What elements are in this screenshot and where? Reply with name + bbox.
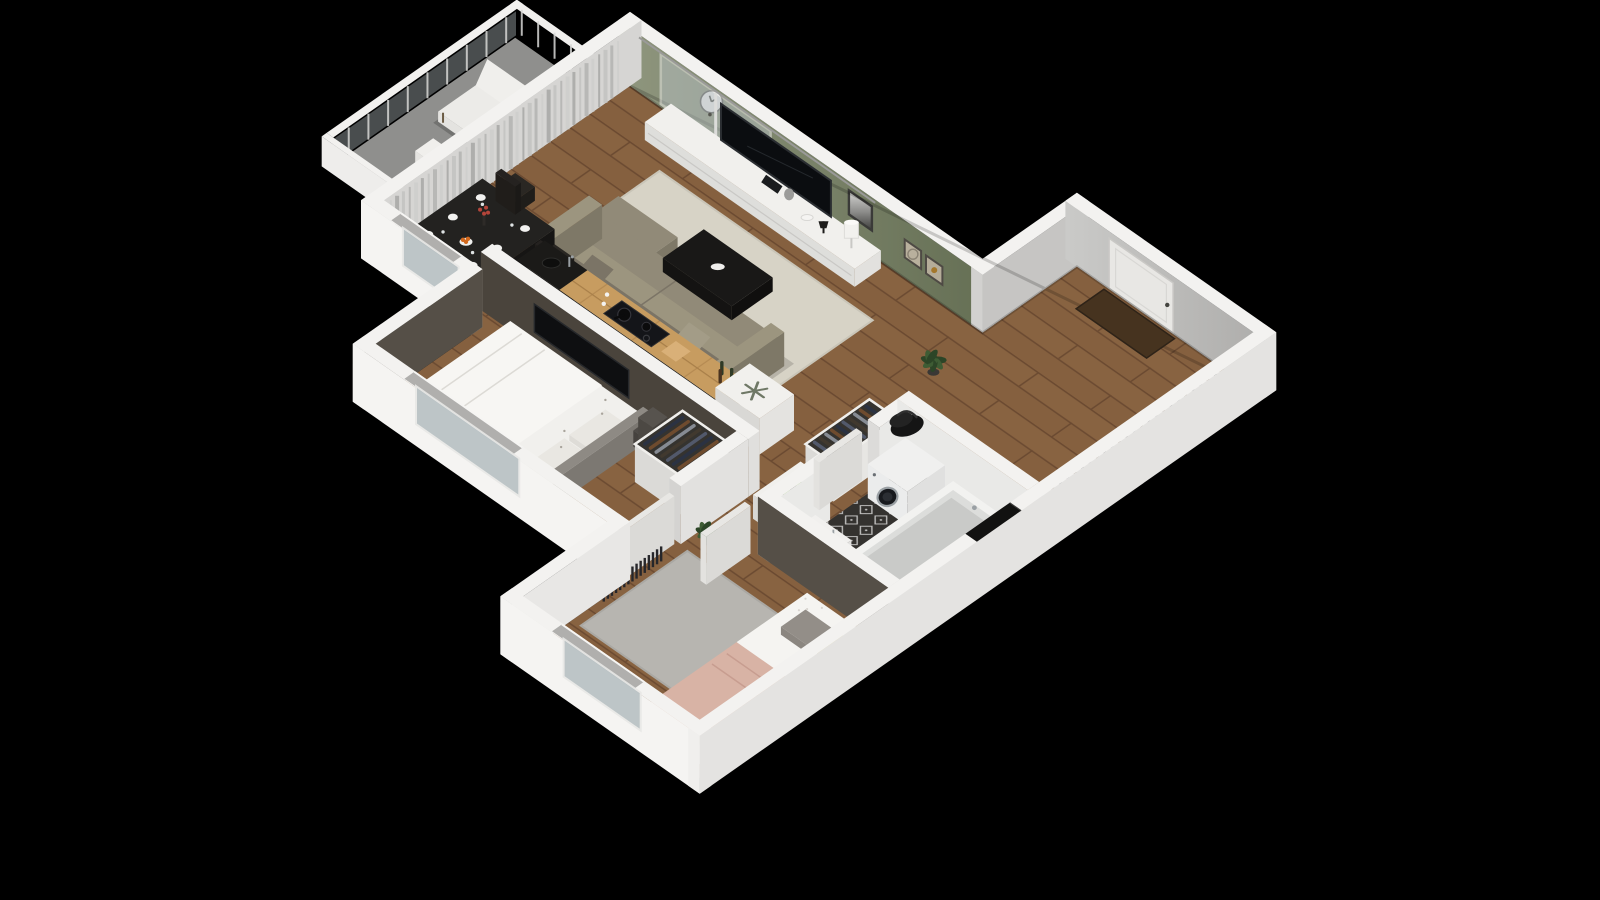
- frame-art-dot: [931, 267, 937, 273]
- sink-basin: [542, 258, 560, 268]
- flower: [482, 212, 486, 216]
- floor-plan-render: DE: [0, 0, 1600, 900]
- table-tray: [711, 263, 725, 270]
- glass: [481, 203, 484, 206]
- bathroom-door-open-left: [814, 458, 820, 510]
- faucet-head: [571, 255, 574, 258]
- flower: [478, 208, 482, 212]
- orange: [464, 240, 468, 244]
- slider-handle: [708, 113, 712, 117]
- glass: [471, 251, 474, 254]
- pillow-dot: [821, 607, 823, 609]
- pot: [642, 322, 651, 331]
- wall-living-bedroom1-right: [748, 431, 760, 497]
- pillow-dot: [806, 608, 808, 610]
- glass: [441, 230, 444, 233]
- plate: [476, 194, 486, 201]
- washer-drum: [882, 492, 892, 501]
- pillow-dot: [604, 399, 606, 401]
- washer-knob: [873, 473, 876, 476]
- cup: [605, 292, 609, 296]
- dining-chair-back-right: [515, 183, 521, 215]
- glass: [510, 223, 513, 226]
- door-handle: [1165, 303, 1169, 307]
- tub-faucet: [972, 505, 977, 510]
- apartment-isometric-scene: DE: [0, 0, 1600, 900]
- plate: [448, 214, 458, 221]
- decor-tray: [801, 215, 813, 221]
- pillow-dot: [560, 446, 562, 448]
- decor-vase: [784, 188, 794, 200]
- flower: [486, 211, 490, 215]
- wall-entry-west-left: [971, 267, 983, 333]
- pillow-dot: [601, 413, 603, 415]
- bedroom2-door-open-left: [701, 533, 707, 585]
- plate: [520, 225, 530, 232]
- wall-east-left: [688, 728, 700, 794]
- lamp-top: [844, 220, 858, 225]
- pillow-dot: [804, 598, 806, 600]
- cup: [602, 302, 606, 306]
- pillow-dot: [798, 609, 800, 611]
- flower: [484, 206, 488, 210]
- pillow-dot: [563, 430, 565, 432]
